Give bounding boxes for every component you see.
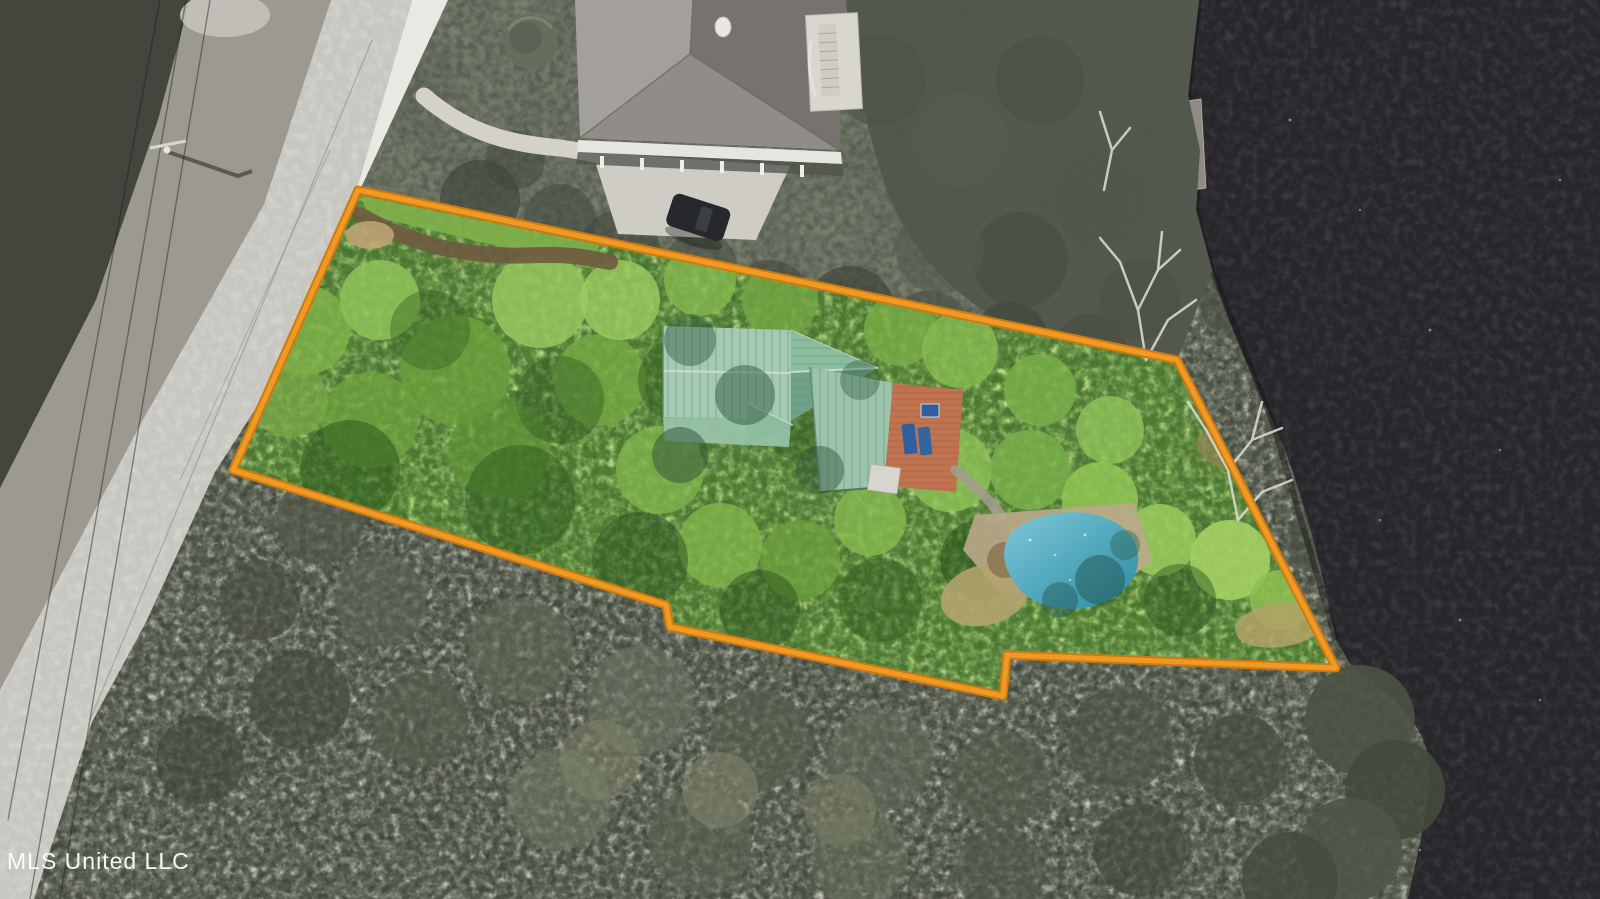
dirt-patch (346, 221, 394, 249)
hot-tub (921, 404, 939, 417)
roof-vent (715, 17, 731, 37)
watermark-text: MLS United LLC (7, 848, 190, 874)
side-deck (806, 13, 863, 112)
white-shed (867, 464, 900, 494)
aerial-photo: MLS United LLC (0, 0, 1600, 899)
aerial-photo-svg: MLS United LLC (0, 0, 1600, 899)
